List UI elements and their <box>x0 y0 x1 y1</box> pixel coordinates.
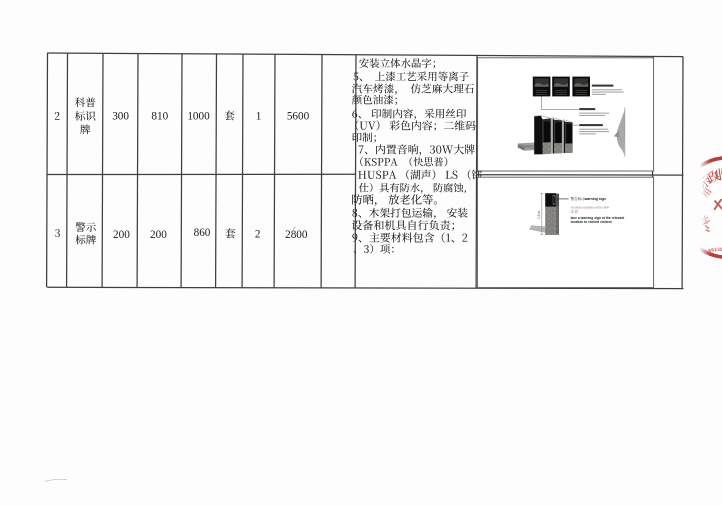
svg-text:810: 810 <box>151 111 168 123</box>
svg-text:5600: 5600 <box>287 111 310 123</box>
svg-text:2: 2 <box>255 228 261 240</box>
svg-text:300: 300 <box>112 111 129 123</box>
svg-text:2800: 2800 <box>285 229 308 241</box>
svg-text:1000: 1000 <box>187 111 210 123</box>
svg-text:warning sign: warning sign <box>584 197 606 201</box>
svg-text:1: 1 <box>256 111 262 123</box>
svg-text:200: 200 <box>150 229 167 241</box>
svg-text:860: 860 <box>194 227 211 239</box>
svg-text:location to remind visitors: location to remind visitors <box>571 220 612 224</box>
svg-text:200: 200 <box>113 229 130 241</box>
svg-text:0.8 m: 0.8 m <box>537 211 541 220</box>
